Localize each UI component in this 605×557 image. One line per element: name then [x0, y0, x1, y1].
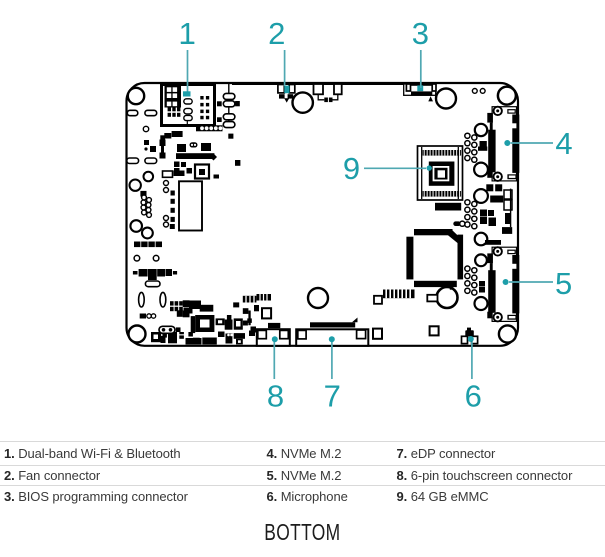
svg-text:5: 5 — [555, 266, 572, 301]
svg-text:8: 8 — [267, 378, 284, 413]
svg-text:6: 6 — [465, 378, 482, 413]
svg-text:9: 9 — [343, 151, 360, 186]
svg-text:4: 4 — [555, 126, 572, 161]
svg-text:3: 3 — [412, 16, 429, 51]
svg-text:2: 2 — [268, 16, 285, 51]
svg-text:1: 1 — [179, 16, 196, 51]
svg-text:7: 7 — [324, 378, 341, 413]
